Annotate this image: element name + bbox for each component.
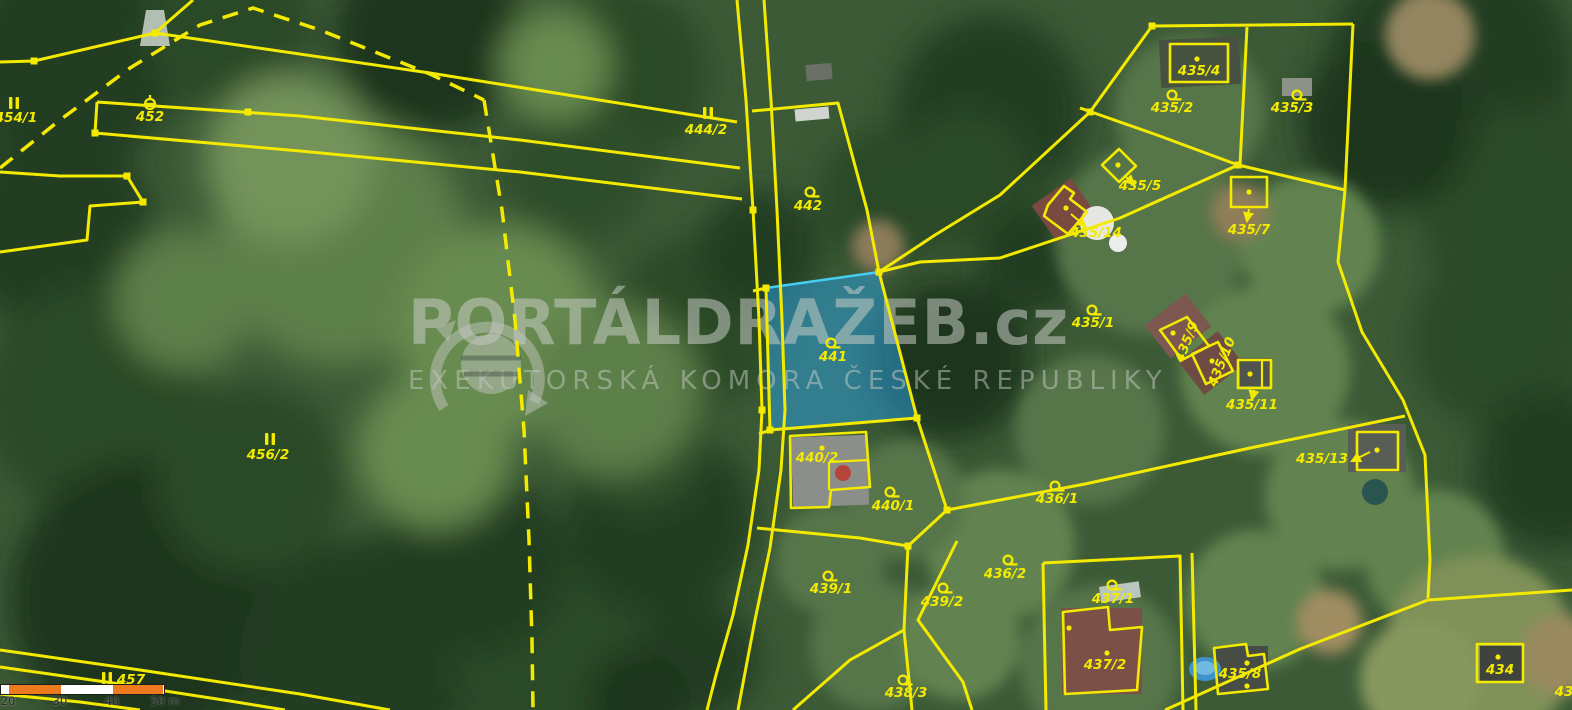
building-dot: [1247, 371, 1252, 376]
boundary-line: [155, 33, 737, 122]
bars-symbol: [9, 97, 19, 109]
bar: [265, 433, 268, 445]
vertex-marker: [31, 58, 38, 65]
parcel-label-442: 442: [793, 198, 822, 214]
bar: [9, 97, 12, 109]
parcel-label-454/1: 454/1: [0, 110, 37, 126]
cadastral-overlay: 454/1452444/2442441435/4435/2435/3435/54…: [0, 0, 1572, 710]
scale-label: 50 m: [150, 694, 180, 708]
boundary-line: [707, 0, 762, 710]
building-outline: [1063, 607, 1142, 694]
scale-label: 20: [1, 694, 16, 708]
vertex-marker: [152, 30, 159, 37]
dashed-boundary-line: [484, 100, 533, 710]
scale-segment: [1, 685, 9, 694]
scale-segment: [113, 685, 163, 694]
pointer-arrow: [1352, 452, 1370, 461]
vertex-marker: [944, 507, 951, 514]
boundary-line: [757, 418, 947, 546]
parcel-label-452: 452: [135, 109, 164, 125]
parcel-label-435/10: 435/10: [1204, 335, 1239, 390]
scale-segment: [61, 685, 113, 694]
vertex-marker: [1087, 109, 1094, 116]
ring: [1293, 91, 1302, 100]
vertex-marker: [1149, 23, 1156, 30]
building-435/7: [1231, 177, 1267, 207]
building-outline: [1238, 360, 1271, 388]
parcel-label-435/14: 435/14: [1069, 225, 1122, 241]
building-dot: [1104, 650, 1109, 655]
ring: [939, 584, 948, 593]
parcel-label-435/4: 435/4: [1177, 63, 1221, 79]
vertex-marker: [92, 130, 99, 137]
ring-symbol: [827, 339, 841, 348]
ring: [827, 339, 836, 348]
vertex-marker: [876, 269, 883, 276]
building-dot: [1374, 447, 1379, 452]
ring: [1004, 556, 1013, 565]
parcel-label-436/2: 436/2: [983, 566, 1027, 582]
building-dot: [1244, 660, 1249, 665]
building-dot: [1066, 625, 1071, 630]
boundary-line: [770, 418, 917, 430]
vertex-marker: [763, 285, 770, 292]
ring-symbol: [1088, 306, 1102, 315]
map-viewport[interactable]: PORTÁLDRAŽEB.cz EXEKUTORSKÁ KOMORA ČESKÉ…: [0, 0, 1572, 710]
parcel-label-435/1: 435/1: [1071, 315, 1115, 331]
boundary-line: [1338, 24, 1430, 598]
vertex-marker: [1235, 162, 1242, 169]
boundary-line: [1152, 24, 1353, 26]
parcel-labels: 454/1452444/2442441435/4435/2435/3435/54…: [0, 63, 1572, 701]
parcel-boundaries: [0, 0, 1572, 710]
ring: [1108, 581, 1117, 590]
boundary-line: [1192, 553, 1196, 710]
vertex-marker: [124, 173, 131, 180]
bar: [710, 107, 713, 119]
boundary-line: [879, 165, 1238, 272]
bar: [272, 433, 275, 445]
scale-label: 40: [105, 694, 120, 708]
parcel-label-434: 434: [1485, 662, 1514, 678]
parcel-label-437/1: 437/1: [1091, 591, 1135, 607]
bar: [703, 107, 706, 119]
ring-symbol: [1108, 581, 1122, 590]
parcel-label-435/5: 435/5: [1118, 178, 1162, 194]
boundary-line: [97, 102, 740, 168]
scale-label: 30: [53, 694, 68, 708]
ring: [886, 488, 895, 497]
vertex-marker: [905, 543, 912, 550]
ring: [806, 188, 815, 197]
building-dot: [1246, 189, 1251, 194]
vertex-marker: [750, 207, 757, 214]
vertex-marker: [759, 407, 766, 414]
boundary-line: [879, 272, 917, 418]
building-dot: [1194, 56, 1199, 61]
parcel-label-437/2: 437/2: [1083, 657, 1127, 673]
ring-symbol: [1168, 91, 1182, 100]
boundary-line: [95, 102, 97, 133]
parcel-label-435/9: 435/9: [1171, 319, 1202, 365]
ring: [824, 572, 833, 581]
parcel-label-439/2: 439/2: [920, 594, 964, 610]
bar: [16, 97, 19, 109]
boundary-vertices: [31, 23, 1242, 550]
ring: [1088, 306, 1097, 315]
parcel-label-441: 441: [818, 349, 847, 365]
scale-segment: [9, 685, 61, 694]
parcel-label-440/1: 440/1: [871, 498, 915, 514]
ring: [1168, 91, 1177, 100]
ring-symbol: [1293, 91, 1307, 100]
building-dot: [1063, 205, 1068, 210]
boundary-line: [1043, 563, 1046, 710]
parcel-label-435/11: 435/11: [1225, 397, 1278, 413]
parcel-label-438/3: 438/3: [884, 685, 928, 701]
bar: [109, 672, 112, 684]
bars-symbol: [265, 433, 275, 445]
parcel-label-435/2: 435/2: [1150, 100, 1194, 116]
parcel-label-456/2: 456/2: [246, 447, 290, 463]
parcel-label-435/8: 435/8: [1218, 666, 1262, 682]
ring-symbol: [939, 584, 953, 593]
building-435/11: [1238, 360, 1271, 388]
parcel-label-435/7: 435/7: [1227, 222, 1271, 238]
building-dot: [1244, 683, 1249, 688]
parcel-label-440/2: 440/2: [795, 450, 839, 466]
parcel-label-444/2: 444/2: [684, 122, 728, 138]
building-dot: [1495, 654, 1500, 659]
vertex-marker: [245, 109, 252, 116]
vertex-marker: [767, 427, 774, 434]
building-437/2: [1063, 607, 1142, 694]
parcel-label-439/1: 439/1: [809, 581, 853, 597]
scale-bar-labels: 20304050 m: [0, 694, 220, 710]
bar: [102, 672, 105, 684]
vertex-marker: [914, 415, 921, 422]
ring-symbol: [824, 572, 838, 581]
ring-symbol: [1004, 556, 1018, 565]
ring-symbol: [886, 488, 900, 497]
boundary-line: [0, 172, 143, 252]
parcel-label-436/1: 436/1: [1035, 491, 1079, 507]
parcel-label-43: 43: [1554, 684, 1572, 700]
ring-symbol: [806, 188, 820, 197]
building-outlines: [790, 44, 1523, 694]
pointer-arrow: [1247, 209, 1249, 221]
building-440/2: [790, 432, 870, 508]
boundary-line: [95, 133, 742, 199]
boundary-line: [0, 0, 193, 62]
building-dot: [1170, 330, 1175, 335]
ring: [899, 676, 908, 685]
building-435/13: [1357, 432, 1398, 470]
parcel-label-435/3: 435/3: [1270, 100, 1314, 116]
building-dot: [1115, 162, 1120, 167]
vertex-marker: [140, 199, 147, 206]
parcel-label-435/13: 435/13: [1295, 451, 1348, 467]
boundary-line: [766, 288, 770, 430]
boundary-line: [1240, 27, 1247, 165]
dashed-boundary-line: [0, 8, 484, 168]
